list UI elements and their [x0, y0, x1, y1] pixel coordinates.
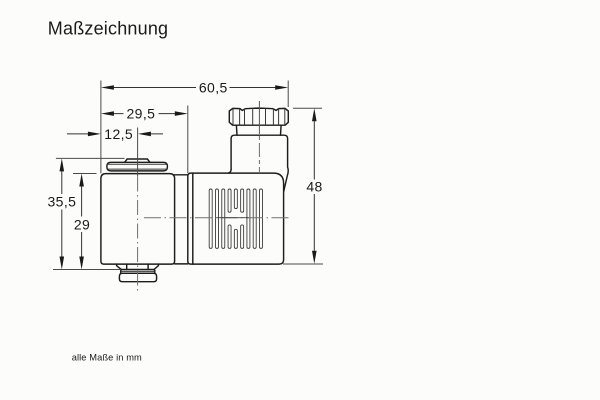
svg-text:29: 29: [74, 216, 90, 232]
svg-text:60,5: 60,5: [199, 80, 228, 96]
svg-text:12,5: 12,5: [104, 126, 133, 142]
svg-text:48: 48: [306, 179, 322, 195]
svg-text:35,5: 35,5: [47, 194, 76, 210]
svg-text:29,5: 29,5: [126, 106, 155, 122]
svg-text:Maßzeichnung: Maßzeichnung: [48, 19, 168, 39]
svg-text:alle Maße in mm: alle Maße in mm: [72, 353, 142, 363]
